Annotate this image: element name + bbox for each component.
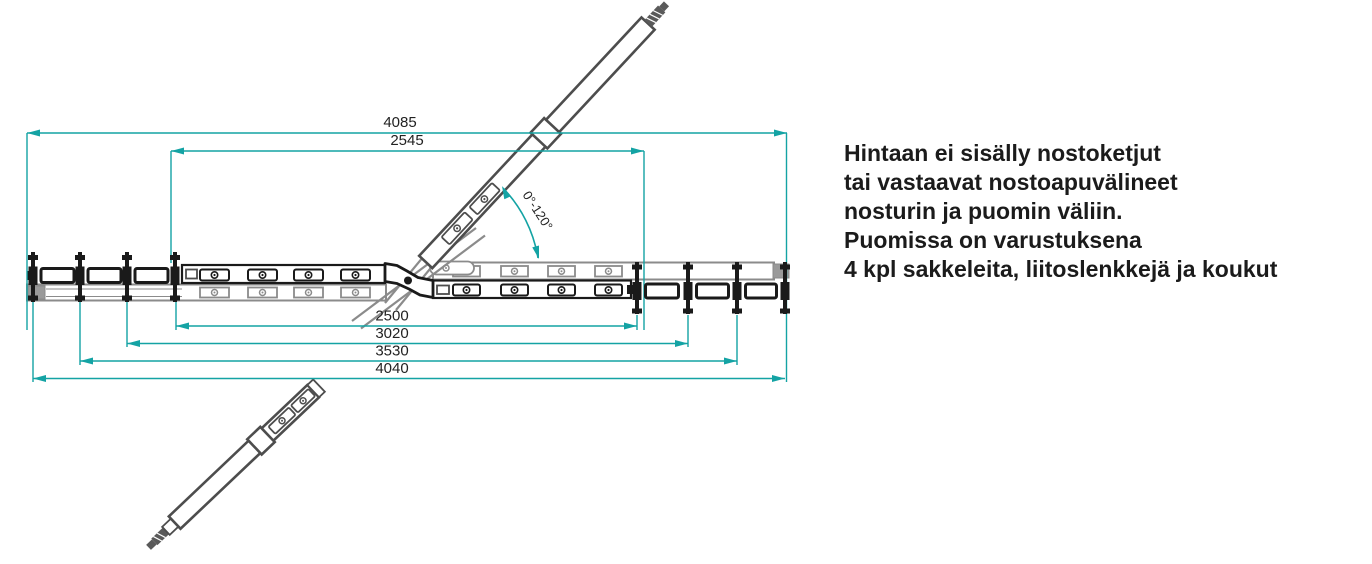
note-line: Puomissa on varustuksena bbox=[844, 226, 1277, 255]
dim-label-inner-top: 2545 bbox=[390, 132, 423, 149]
dim-label-3020: 3020 bbox=[375, 325, 408, 342]
note-text: Hintaan ei sisälly nostoketjut tai vasta… bbox=[844, 139, 1277, 284]
dim-label-2500: 2500 bbox=[375, 308, 408, 325]
note-line: tai vastaavat nostoapuvälineet bbox=[844, 168, 1277, 197]
dim-label-4040: 4040 bbox=[375, 360, 408, 377]
diagram-canvas: 4085 2545 2500 3020 3530 4040 0°-120° Hi… bbox=[0, 0, 1372, 564]
lifting-arm-detached bbox=[141, 378, 326, 555]
angle-range-label: 0°-120° bbox=[520, 188, 556, 233]
angle-annotation: 0°-120° bbox=[499, 185, 556, 260]
dimension-labels: 4085 2545 2500 3020 3530 4040 bbox=[375, 114, 423, 377]
note-line: nosturin ja puomin väliin. bbox=[844, 197, 1277, 226]
note-line: Hintaan ei sisälly nostoketjut bbox=[844, 139, 1277, 168]
note-line: 4 kpl sakkeleita, liitoslenkkejä ja kouk… bbox=[844, 255, 1277, 284]
dim-label-overall-top: 4085 bbox=[383, 114, 416, 131]
dim-label-3530: 3530 bbox=[375, 343, 408, 360]
